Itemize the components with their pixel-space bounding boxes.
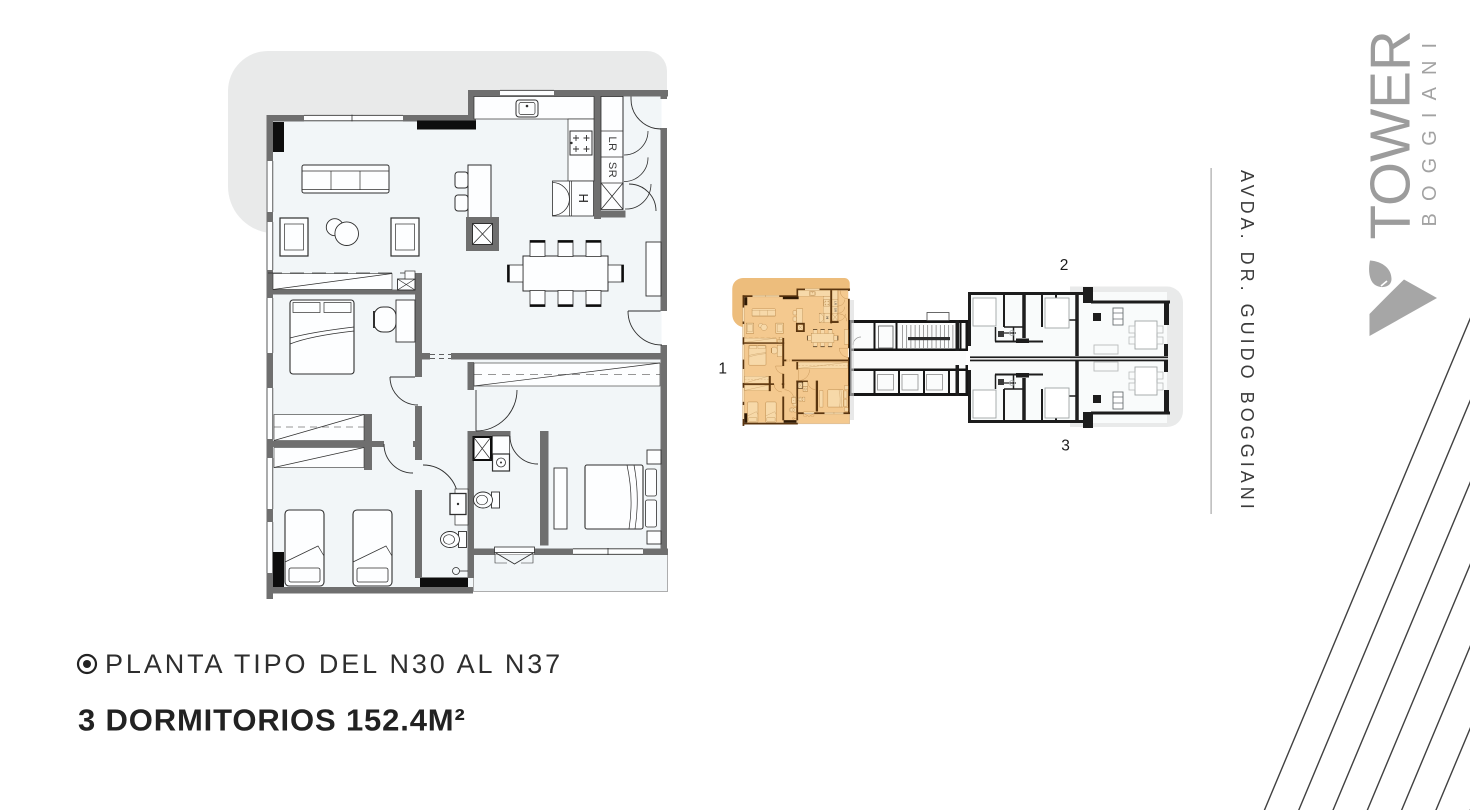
svg-text:BOGGIANI: BOGGIANI xyxy=(1419,31,1441,227)
svg-text:3: 3 xyxy=(1061,438,1070,455)
svg-text:H: H xyxy=(576,194,591,204)
svg-text:TOWER: TOWER xyxy=(1359,30,1422,239)
svg-text:1: 1 xyxy=(718,360,727,377)
svg-text:3 DORMITORIOS 152.4M²: 3 DORMITORIOS 152.4M² xyxy=(78,703,466,738)
svg-text:LR: LR xyxy=(606,136,618,151)
svg-text:AVDA. DR. GUIDO BOGGIANI: AVDA. DR. GUIDO BOGGIANI xyxy=(1237,170,1257,513)
svg-text:2: 2 xyxy=(1060,257,1069,274)
svg-text:PLANTA TIPO DEL N30 AL N37: PLANTA TIPO DEL N30 AL N37 xyxy=(105,649,563,679)
svg-text:SR: SR xyxy=(606,162,618,178)
